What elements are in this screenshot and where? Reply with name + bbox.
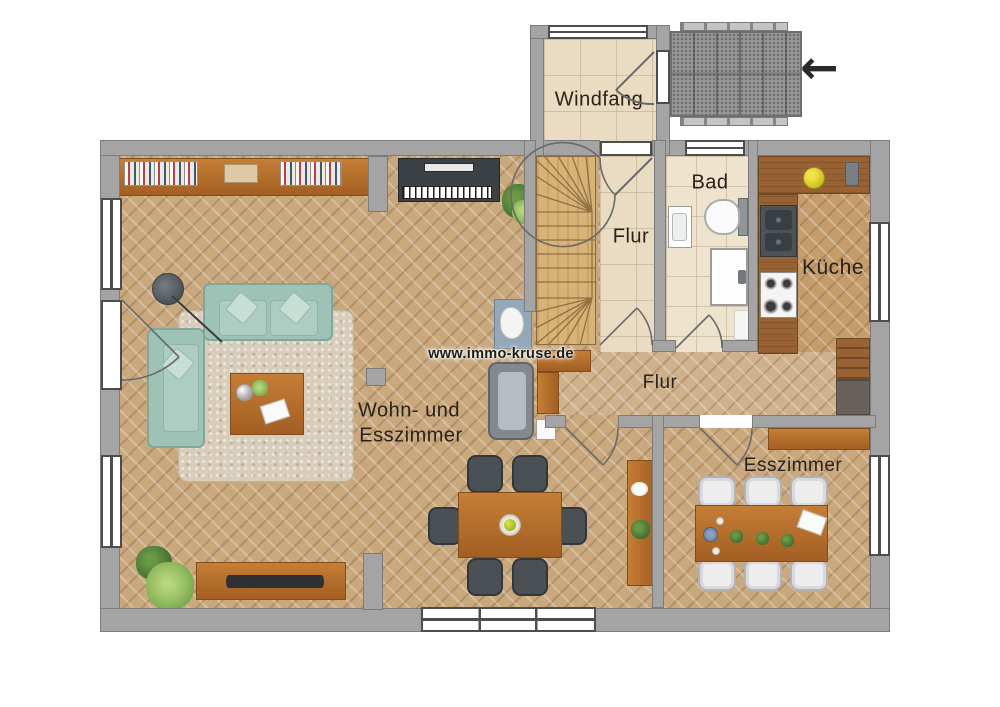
window-esszimmer	[869, 455, 890, 556]
flur-lower-floor	[545, 352, 876, 415]
room-label-kueche: Küche	[802, 256, 864, 280]
basement-steps	[836, 338, 870, 380]
dining-chair	[512, 455, 548, 493]
dining-chair	[428, 507, 462, 545]
lounge-chair-seat	[498, 372, 526, 430]
window-left-2	[101, 455, 122, 548]
shelf-decor	[224, 164, 258, 183]
kitchen-sink-basin-1	[765, 210, 792, 230]
esszimmer-chair	[744, 476, 782, 508]
wall-flur-bad	[654, 140, 666, 352]
porch-rail-bottom	[680, 117, 788, 126]
room-label-esszimmer: Esszimmer	[744, 455, 842, 477]
entry-door-jamb	[656, 50, 670, 104]
esszimmer-plant-3	[781, 534, 794, 547]
windfang-wall-right-a	[656, 25, 670, 52]
fruit-bowl-kitchen	[803, 167, 825, 189]
l-desk-side	[537, 372, 559, 414]
basement-landing	[836, 380, 870, 415]
room-label-wohnzimmer-2: Esszimmer	[359, 425, 462, 448]
wall-south-flur-c	[752, 415, 876, 428]
decor-ball	[236, 384, 253, 401]
entry-arrow-icon: ←	[800, 44, 839, 90]
porch-rail-top	[680, 22, 788, 31]
entry-porch	[670, 31, 802, 117]
pillar-mid	[366, 368, 386, 386]
esszimmer-chair	[698, 476, 736, 508]
room-label-windfang: Windfang	[555, 89, 644, 112]
pillar-top	[368, 156, 388, 212]
desk-chair	[500, 307, 524, 339]
plant-bottom-left	[146, 562, 194, 610]
staircase	[536, 156, 596, 345]
room-label-flur-upper: Flur	[613, 226, 649, 249]
esszimmer-sideboard	[768, 428, 870, 450]
shelf-plant	[631, 520, 650, 539]
wall-bad-kueche	[748, 140, 758, 352]
esszimmer-ball-2	[716, 517, 724, 525]
esszimmer-chair	[744, 559, 782, 591]
wall-right	[870, 140, 890, 632]
bathroom-sink-basin	[672, 213, 687, 241]
esszimmer-ball-1	[712, 547, 720, 555]
flur-upper-floor	[600, 156, 654, 352]
shelf-flowers	[631, 482, 648, 496]
dining-chair	[467, 455, 503, 493]
window-left-1	[101, 198, 122, 290]
stove	[760, 272, 797, 318]
room-label-flur-lower: Flur	[643, 372, 678, 394]
flur-door-threshold	[600, 141, 652, 156]
esszimmer-plant-1	[730, 530, 743, 543]
kitchen-sink-basin-2	[765, 233, 792, 251]
dining-chair	[467, 558, 503, 596]
tv	[226, 575, 324, 588]
wall-flur-bottom-b	[722, 340, 758, 352]
fruit	[504, 519, 516, 531]
window-bottom	[421, 607, 596, 632]
esszimmer-chair	[790, 476, 828, 508]
esszimmer-plant-2	[756, 532, 769, 545]
piano-keys	[402, 186, 492, 199]
kitchen-canister	[845, 162, 859, 186]
wall-flur-bottom-a	[652, 340, 676, 352]
terrace-door-jamb	[101, 300, 122, 390]
wall-south-flur-a	[545, 415, 566, 428]
wall-living-stairs	[524, 140, 536, 312]
window-windfang	[548, 25, 648, 39]
esszimmer-chair	[790, 559, 828, 591]
pillar-bottom	[363, 553, 383, 610]
toilet-bowl	[704, 199, 740, 235]
floor-lamp	[152, 273, 184, 305]
esszimmer-plate	[703, 527, 718, 542]
windfang-wall-left	[530, 25, 544, 156]
coffee-table-plant	[252, 380, 268, 396]
books-left	[124, 161, 198, 186]
wall-top-a	[100, 140, 536, 156]
esszimmer-chair	[698, 559, 736, 591]
books-right	[280, 161, 342, 186]
wall-living-esszimmer	[652, 415, 664, 608]
room-label-wohnzimmer-1: Wohn- und	[358, 400, 460, 423]
watermark: www.immo-kruse.de	[428, 346, 574, 362]
room-label-bad: Bad	[691, 172, 728, 195]
shower-faucet	[738, 270, 746, 284]
window-bad	[685, 140, 745, 156]
floor-plan: ←	[0, 0, 1000, 707]
wall-top-stairs	[536, 140, 600, 156]
window-kitchen	[869, 222, 890, 322]
piano-music-rest	[424, 163, 474, 172]
dining-chair	[512, 558, 548, 596]
